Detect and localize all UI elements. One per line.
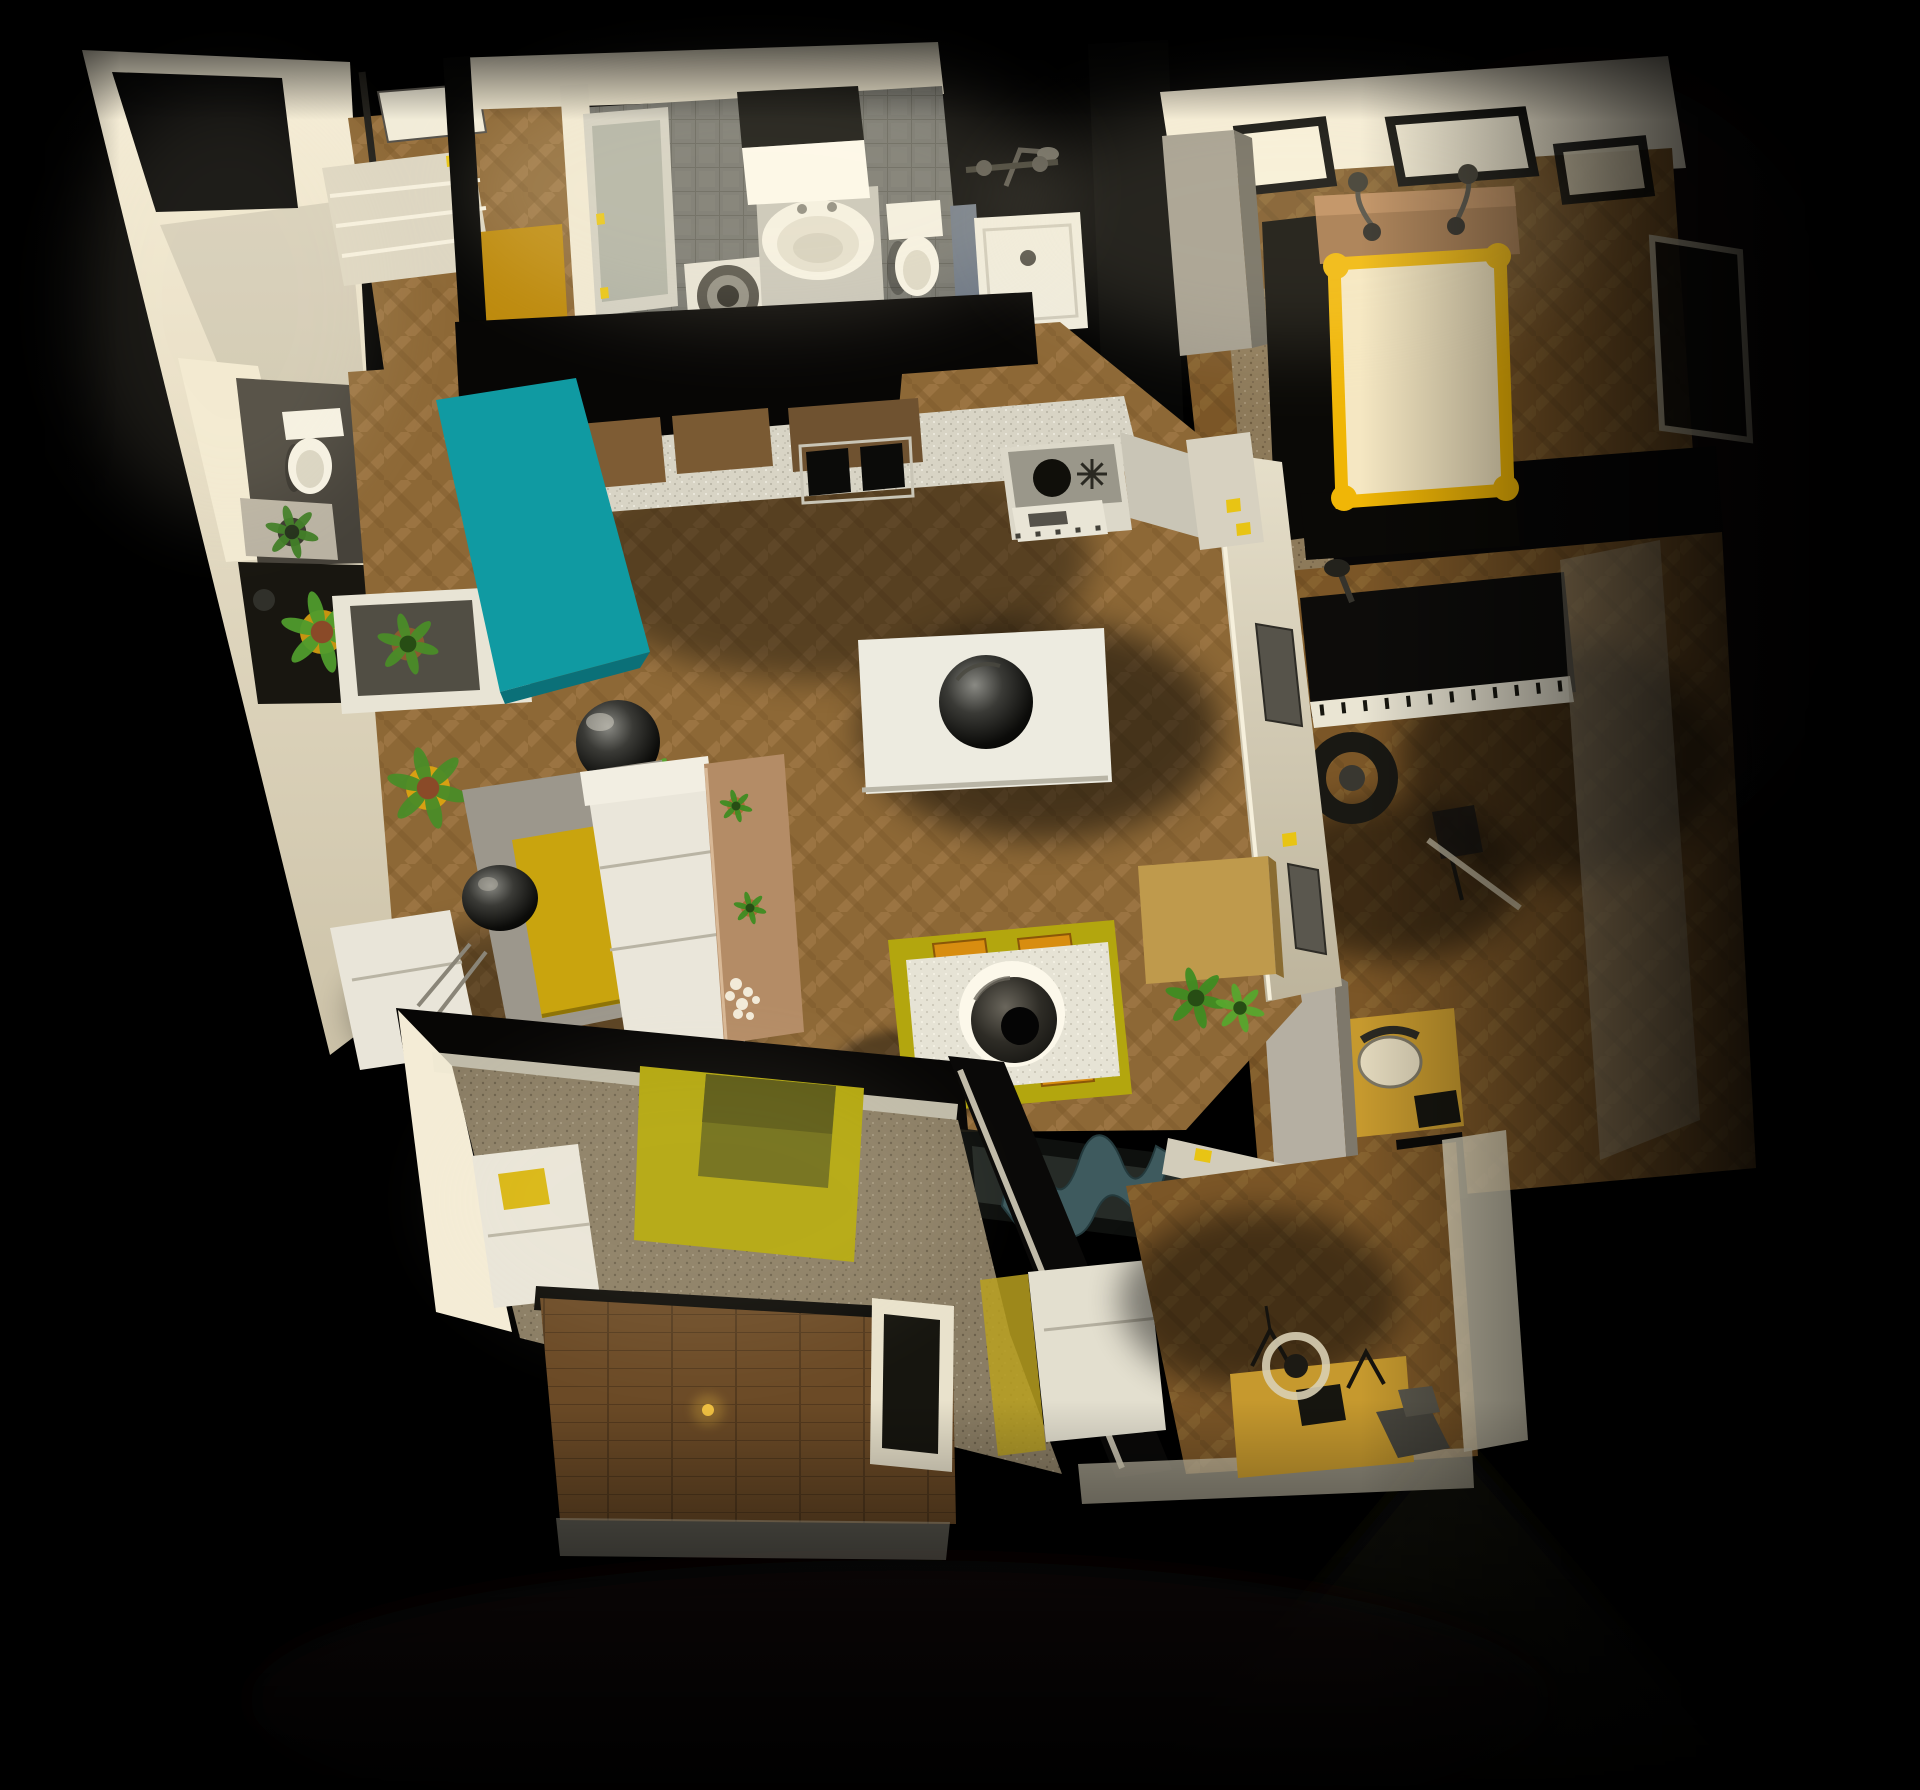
wall-door-handle-2 (1282, 832, 1297, 847)
kitchen-sink-left (806, 448, 851, 496)
bed-corner-ball-3 (1331, 485, 1357, 511)
sphere-vase-highlight (586, 713, 614, 731)
tv-black-disc (939, 655, 1033, 749)
dining-pendant-core (1001, 1007, 1039, 1045)
piano-lamp-head (1324, 559, 1350, 577)
stove-gas-burner (1077, 459, 1107, 489)
apartment-top-down-render (0, 0, 1920, 1790)
floor-lamp-shade (462, 865, 538, 931)
vignette-top (0, 0, 1920, 120)
vignette-bottom (0, 1400, 1920, 1790)
musicroom-chair-core (1284, 1354, 1308, 1378)
stove-burner (1033, 459, 1071, 497)
wall-door-handle-1 (1236, 522, 1251, 536)
render-viewport (0, 0, 1920, 1790)
bedroom-door-handle (1226, 498, 1241, 513)
glow-secondroom (440, 1050, 960, 1350)
vignette-left (0, 0, 120, 1790)
wc-small-pot (253, 589, 275, 611)
console-table (1138, 856, 1276, 984)
kitchen-flap-2 (672, 408, 773, 474)
floor-lamp-highlight (478, 877, 498, 891)
kitchen-sink-right (860, 443, 905, 491)
